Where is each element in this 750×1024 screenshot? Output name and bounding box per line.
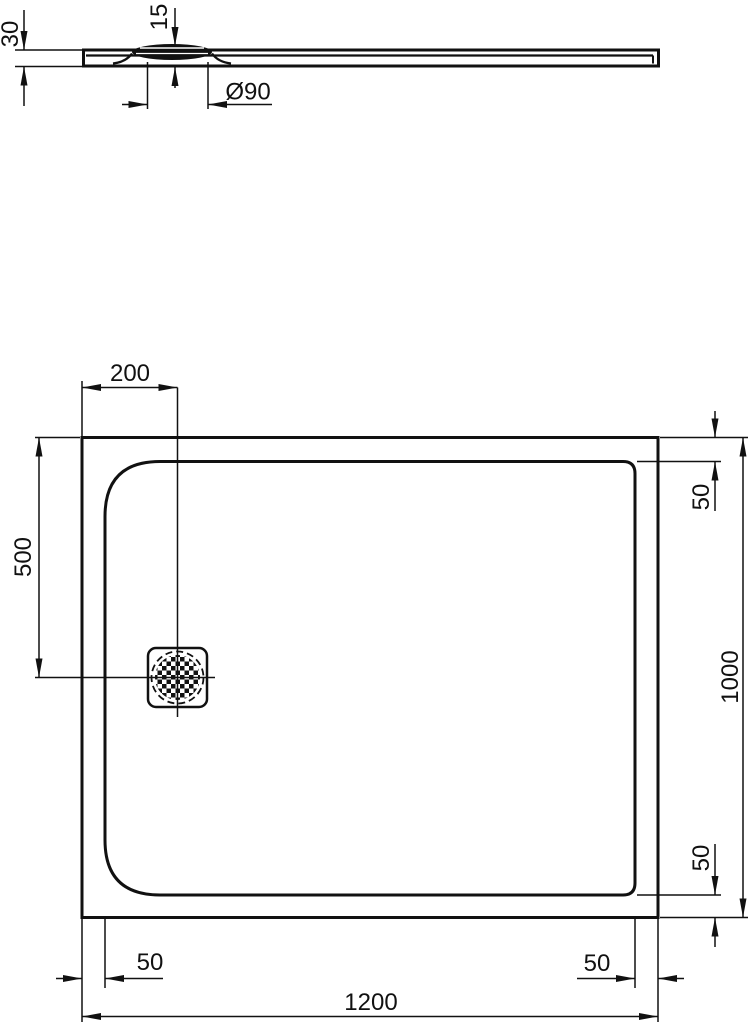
shower-tray-dimension-drawing: 30 15 Ø90 xyxy=(0,0,750,1024)
dim-bottom-right-inset: 50 xyxy=(577,918,684,989)
dim-drain-offset-top: 500 xyxy=(10,438,80,678)
dim-right-bottom-inset: 50 xyxy=(637,844,721,947)
dim-drain-height-label: 15 xyxy=(146,4,173,31)
dim-drain-diameter-label: Ø90 xyxy=(225,79,270,106)
dim-overall-width: 1200 xyxy=(82,918,658,1023)
technical-drawing-page: 30 15 Ø90 xyxy=(0,0,750,1024)
dim-thickness: 30 xyxy=(0,10,82,106)
drain-cover-section xyxy=(132,44,212,60)
dim-bottom-right-inset-label: 50 xyxy=(584,950,611,977)
dim-drain-diameter: Ø90 xyxy=(122,62,272,109)
dim-drain-offset-left-label: 200 xyxy=(110,360,150,387)
dim-drain-offset-top-label: 500 xyxy=(10,537,37,577)
dim-thickness-label: 30 xyxy=(0,21,24,48)
dim-bottom-left-inset: 50 xyxy=(56,918,163,989)
section-view: 30 15 Ø90 xyxy=(0,4,659,109)
dim-right-bottom-inset-label: 50 xyxy=(688,845,715,872)
dim-overall-depth-label: 1000 xyxy=(717,650,744,703)
dim-overall-width-label: 1200 xyxy=(344,989,397,1016)
dim-drain-offset-left: 200 xyxy=(82,360,178,437)
plan-view: 200 500 50 1000 50 xyxy=(10,360,748,1022)
dim-right-top-inset-label: 50 xyxy=(688,484,715,511)
drain-section xyxy=(113,44,231,64)
dim-bottom-left-inset-label: 50 xyxy=(137,949,164,976)
dim-right-top-inset: 50 xyxy=(637,411,748,511)
